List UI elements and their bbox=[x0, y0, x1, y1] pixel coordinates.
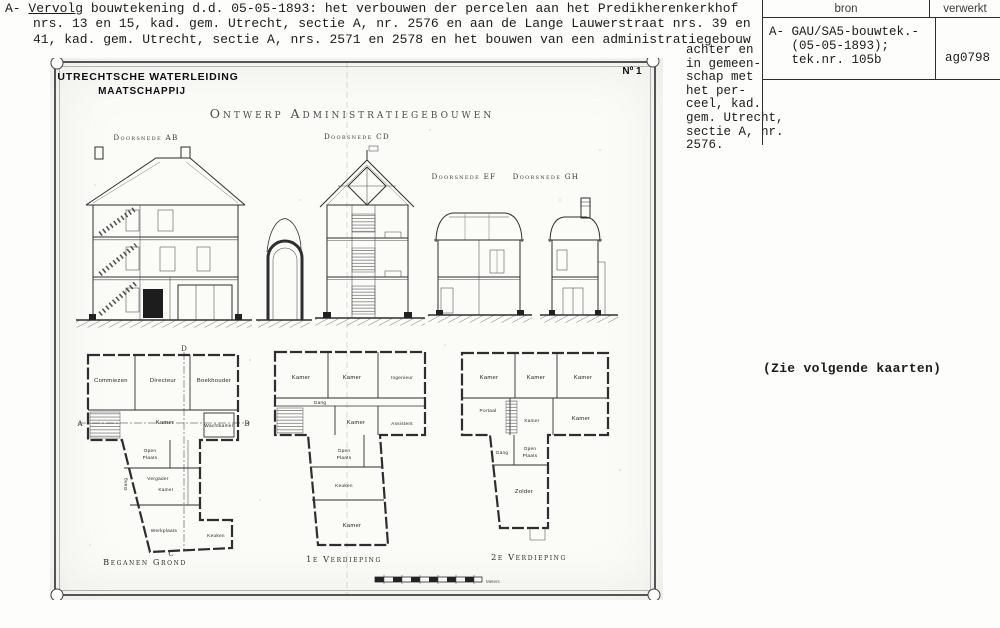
stair-hatch bbox=[277, 408, 303, 433]
column-header-verwerkt: verwerkt bbox=[929, 0, 1000, 17]
plan-label-1e-verdieping: 1e Verdieping bbox=[306, 554, 382, 564]
dark-door bbox=[143, 289, 163, 318]
pin-hole bbox=[648, 589, 660, 600]
stairs bbox=[100, 283, 136, 314]
room-label: Plaats bbox=[523, 453, 538, 458]
pin-hole bbox=[647, 58, 659, 67]
room-label: Werkplaats bbox=[151, 528, 178, 533]
stairs bbox=[100, 208, 136, 234]
plan-label-begane-grond: Beganen Grond bbox=[103, 557, 187, 567]
plan-1e-verdieping: Kamer Kamer Ingenieur Gang Kamer Assiste… bbox=[275, 352, 425, 545]
blueprint-linework: UTRECHTSCHE WATERLEIDING MAATSCHAPPIJ Nº… bbox=[50, 58, 663, 600]
room-label: Kamer bbox=[347, 420, 366, 426]
marker-a: A bbox=[76, 420, 83, 428]
stairs bbox=[100, 245, 136, 274]
section-label-gh: Doorsnede GH bbox=[513, 172, 580, 181]
room-label: Kamer bbox=[480, 375, 499, 381]
section-label-cd: Doorsnede CD bbox=[324, 132, 390, 141]
annotation-underlined-word: Vervolg bbox=[28, 1, 83, 16]
room-label: Open bbox=[524, 446, 537, 451]
room-label: Kamer bbox=[292, 375, 311, 381]
column-header-bron: bron bbox=[763, 0, 929, 17]
scale-bar: Meters bbox=[375, 575, 501, 584]
blueprint-sheet: UTRECHTSCHE WATERLEIDING MAATSCHAPPIJ Nº… bbox=[50, 58, 663, 600]
scale-label: Meters bbox=[486, 579, 501, 584]
room-label: Plaats bbox=[337, 455, 352, 460]
room-label: Assistent bbox=[391, 421, 413, 426]
plan-2e-verdieping: Kamer Kamer Kamer Portaal Kamer Kamer Ga… bbox=[462, 353, 608, 540]
source-table-header: bron verwerkt bbox=[763, 0, 1000, 18]
see-following-cards-note: (Zie volgende kaarten) bbox=[763, 361, 941, 376]
section-label-ab: Doorsnede AB bbox=[113, 133, 178, 142]
annotation-line1: A- Vervolg bouwtekening d.d. 05-05-1893:… bbox=[5, 1, 751, 16]
company-stamp-line1: UTRECHTSCHE WATERLEIDING bbox=[57, 71, 238, 83]
room-label: Open bbox=[144, 448, 157, 453]
pin-hole bbox=[51, 58, 63, 69]
section-ab bbox=[76, 147, 252, 328]
annotation-line1-text: bouwtekening d.d. 05-05-1893: het verbou… bbox=[83, 1, 738, 16]
room-label: Directeur bbox=[150, 378, 176, 384]
source-table: bron verwerkt A- GAU/SA5-bouwtek.- (05-0… bbox=[762, 0, 1000, 79]
section-label-ef: Doorsnede EF bbox=[432, 172, 497, 181]
section-ef bbox=[428, 213, 532, 323]
drawing-title: Ontwerp Administratiegebouwen bbox=[210, 106, 494, 121]
bron-entry: A- GAU/SA5-bouwtek.- (05-05-1893); tek.n… bbox=[763, 18, 935, 79]
stair-hatch bbox=[352, 248, 375, 272]
room-label: Kamer bbox=[156, 420, 175, 426]
room-label: Plaats bbox=[143, 455, 158, 460]
room-label: Keuken bbox=[335, 483, 353, 488]
sheet-number: Nº 1 bbox=[622, 66, 642, 77]
room-label: Boekhouder bbox=[197, 378, 231, 384]
marker-b: B bbox=[244, 420, 249, 428]
room-label: Kamer bbox=[574, 375, 593, 381]
room-label: Gang bbox=[123, 478, 128, 491]
verwerkt-entry: ag0798 bbox=[935, 18, 1000, 79]
room-label: Portaal bbox=[480, 408, 497, 413]
room-label: Vergader bbox=[147, 476, 169, 481]
table-left-rule bbox=[762, 79, 763, 145]
marker-d: D bbox=[181, 345, 187, 353]
room-label: Open bbox=[338, 448, 351, 453]
annotation-letter: A- bbox=[5, 1, 21, 16]
company-stamp-line2: MAATSCHAPPIJ bbox=[98, 86, 186, 97]
section-cd bbox=[315, 146, 425, 326]
room-label: Keuken bbox=[207, 533, 225, 538]
room-label: Kamer bbox=[527, 375, 546, 381]
stair-hatch bbox=[352, 286, 375, 314]
room-label: Zolder bbox=[515, 489, 533, 495]
room-label: Wachtkamer bbox=[204, 423, 233, 428]
annotation-wrapped-lines: nrs. 13 en 15, kad. gem. Utrecht, sectie… bbox=[5, 16, 751, 47]
room-label: Kamer bbox=[524, 418, 539, 423]
archive-card: A- Vervolg bouwtekening d.d. 05-05-1893:… bbox=[0, 0, 1000, 628]
room-label: Kamer bbox=[343, 523, 362, 529]
room-label: Ingenieur bbox=[391, 375, 413, 380]
room-label: Gang bbox=[496, 450, 509, 455]
room-label: Kamer bbox=[343, 375, 362, 381]
room-label: Kamer bbox=[158, 487, 173, 492]
typed-annotation: A- Vervolg bouwtekening d.d. 05-05-1893:… bbox=[5, 1, 751, 47]
stair-hatch bbox=[90, 412, 120, 438]
pin-hole bbox=[51, 589, 63, 600]
plan-begane-grond: A B D C Commiezen Directeur Boekhouder K… bbox=[76, 345, 250, 558]
source-table-row: A- GAU/SA5-bouwtek.- (05-05-1893); tek.n… bbox=[763, 18, 1000, 80]
stair-hatch bbox=[506, 401, 517, 433]
arch-gateway bbox=[256, 219, 312, 328]
section-gh bbox=[540, 198, 618, 323]
stair-hatch bbox=[352, 214, 375, 232]
plan-label-2e-verdieping: 2e Verdieping bbox=[491, 552, 567, 562]
room-label: Gang bbox=[314, 400, 327, 405]
scan-noise bbox=[89, 129, 621, 546]
room-label: Kamer bbox=[572, 416, 591, 422]
room-label: Commiezen bbox=[94, 378, 128, 384]
